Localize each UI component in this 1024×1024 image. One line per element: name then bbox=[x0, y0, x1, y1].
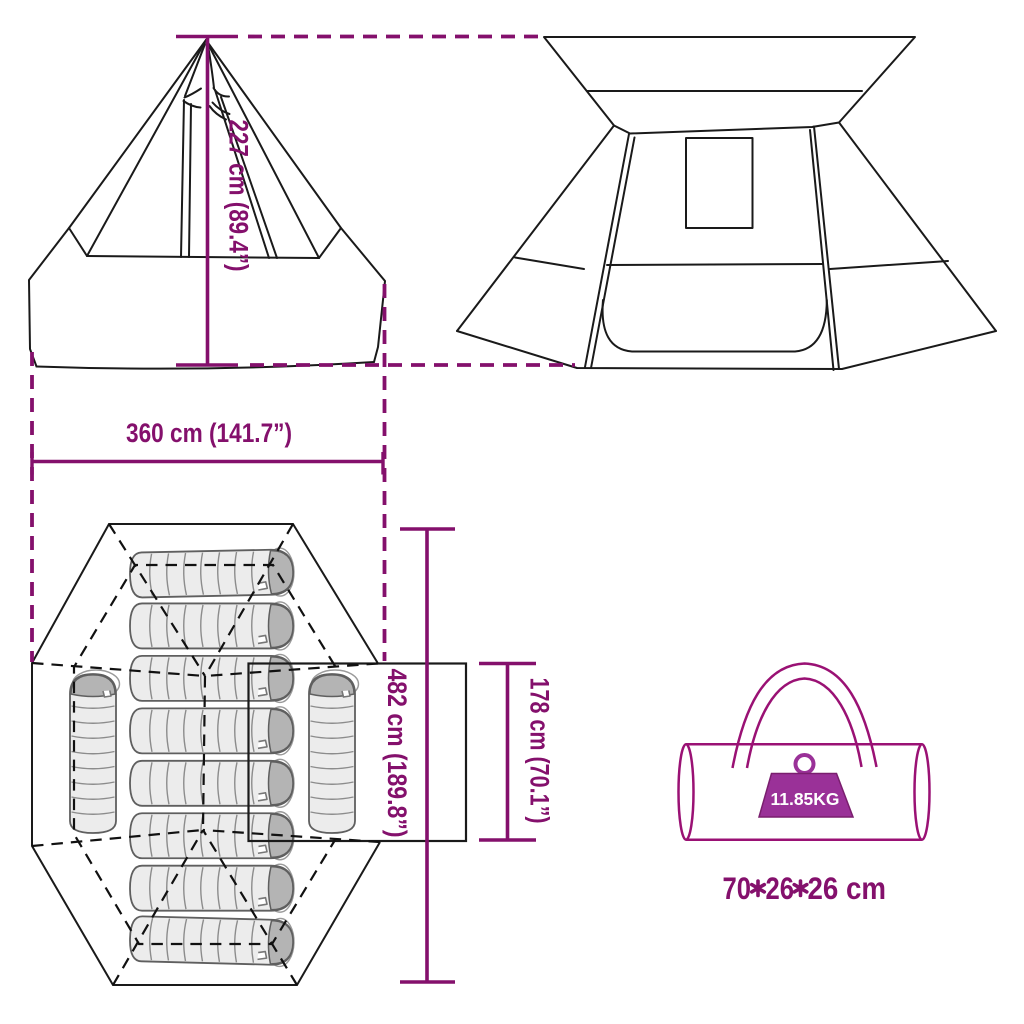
svg-text:227 cm (89.4”): 227 cm (89.4”) bbox=[224, 120, 254, 272]
svg-text:70: 70 bbox=[723, 870, 752, 906]
svg-text:26: 26 bbox=[766, 870, 795, 906]
svg-text:178 cm (70.1”): 178 cm (70.1”) bbox=[525, 678, 555, 824]
svg-text:11.85KG: 11.85KG bbox=[771, 789, 840, 809]
svg-text:360 cm (141.7”): 360 cm (141.7”) bbox=[126, 418, 292, 448]
svg-text:26 cm: 26 cm bbox=[808, 870, 887, 906]
svg-text:482 cm (189.8”): 482 cm (189.8”) bbox=[382, 669, 412, 838]
